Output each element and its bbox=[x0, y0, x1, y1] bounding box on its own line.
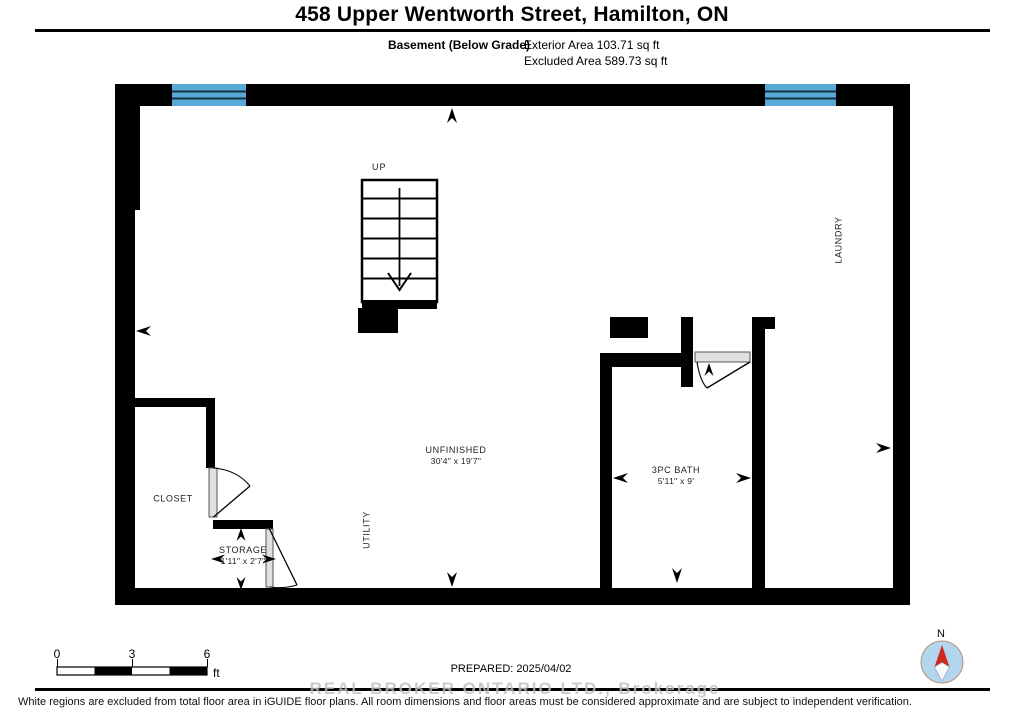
scale-label-3: 3 bbox=[129, 647, 136, 661]
window-top-left bbox=[172, 84, 246, 106]
closet-right-wall bbox=[206, 398, 215, 468]
arrow-down-bottom bbox=[447, 572, 457, 587]
scale-label-6: 6 bbox=[204, 647, 211, 661]
closet-door bbox=[209, 468, 250, 517]
floor-plan-page: 458 Upper Wentworth Street, Hamilton, ON… bbox=[0, 0, 1024, 720]
room-label-laundry: LAUNDRY bbox=[834, 216, 845, 263]
brokerage-watermark: REAL BROKER ONTARIO LTD., Brokerage bbox=[310, 679, 721, 699]
door-swing-arc bbox=[270, 585, 298, 588]
room-label-closet: CLOSET bbox=[153, 494, 193, 505]
door-leaf bbox=[695, 352, 750, 362]
scale-label-0: 0 bbox=[54, 647, 61, 661]
compass bbox=[921, 641, 963, 683]
dimension-arrows bbox=[136, 108, 891, 590]
door-leaf bbox=[209, 468, 217, 517]
compass-north-label: N bbox=[937, 628, 945, 640]
room-dimensions: 5'11" x 9' bbox=[652, 476, 700, 487]
stairs bbox=[358, 180, 437, 333]
stairs-post bbox=[358, 308, 398, 333]
arrow-bath-right bbox=[736, 473, 751, 483]
door-swing-line bbox=[214, 486, 251, 517]
wall-right bbox=[893, 84, 910, 605]
room-label-bath: 3PC BATH 5'11" x 9' bbox=[652, 465, 700, 487]
wall-bottom bbox=[115, 588, 910, 605]
stairs-base-wall bbox=[362, 300, 437, 309]
room-name: 3PC BATH bbox=[652, 465, 700, 476]
room-dimensions: 30'4" x 19'7" bbox=[425, 456, 486, 467]
arrow-up-top bbox=[447, 108, 457, 123]
room-label-utility: UTILITY bbox=[362, 511, 373, 549]
window-glass bbox=[172, 84, 246, 106]
prepared-date: PREPARED: 2025/04/02 bbox=[451, 663, 572, 675]
scale-segment bbox=[170, 667, 208, 675]
wall-left-upper bbox=[115, 84, 140, 210]
scale-segment bbox=[95, 667, 133, 675]
room-name: UNFINISHED bbox=[425, 445, 486, 456]
arrow-right-wall bbox=[876, 443, 891, 453]
bath-left-wall bbox=[600, 353, 612, 588]
arrow-bath-left bbox=[613, 473, 628, 483]
storage-top-wall bbox=[213, 520, 273, 529]
arrow-storage-up bbox=[237, 528, 246, 541]
room-dimensions: 1'11" x 2'7" bbox=[219, 556, 267, 567]
bath-door bbox=[695, 352, 750, 388]
arrow-bath-down bbox=[672, 568, 682, 583]
scale-bar bbox=[57, 659, 208, 675]
bath-top-wall bbox=[600, 353, 683, 367]
door-swing-line bbox=[270, 529, 298, 585]
pillar bbox=[610, 317, 648, 338]
wall-left-lower bbox=[115, 208, 135, 605]
door-swing-line bbox=[707, 362, 750, 388]
room-label-unfinished: UNFINISHED 30'4" x 19'7" bbox=[425, 445, 486, 467]
room-label-storage: STORAGE 1'11" x 2'7" bbox=[219, 545, 267, 567]
scale-unit-label: ft bbox=[213, 666, 220, 680]
bath-right-wall bbox=[752, 317, 765, 588]
room-name: CLOSET bbox=[153, 494, 193, 505]
arrow-left-wall bbox=[136, 326, 151, 336]
door-swing-arc bbox=[214, 468, 251, 486]
bath-door-jamb-wall bbox=[681, 317, 693, 387]
window-glass bbox=[765, 84, 836, 106]
arrow-bath-door-up bbox=[705, 363, 714, 376]
bath-right-wall-notch bbox=[752, 317, 775, 329]
floor-plan-drawing bbox=[0, 0, 1024, 720]
closet-top-wall bbox=[135, 398, 215, 407]
room-name: STORAGE bbox=[219, 545, 267, 556]
stairs-up-label: UP bbox=[372, 162, 387, 172]
window-top-right bbox=[765, 84, 836, 106]
